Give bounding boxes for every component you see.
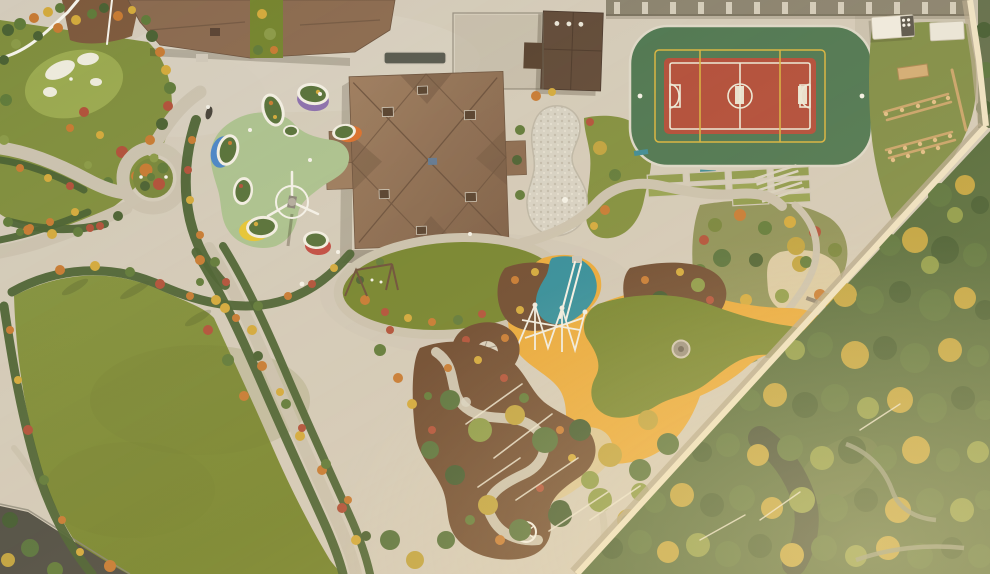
sun-glare xyxy=(0,0,990,574)
aerial-photo: Autumn aerial drone view of a landscaped… xyxy=(0,0,990,574)
aerial-photo-stage: Autumn aerial drone view of a landscaped… xyxy=(0,0,990,574)
